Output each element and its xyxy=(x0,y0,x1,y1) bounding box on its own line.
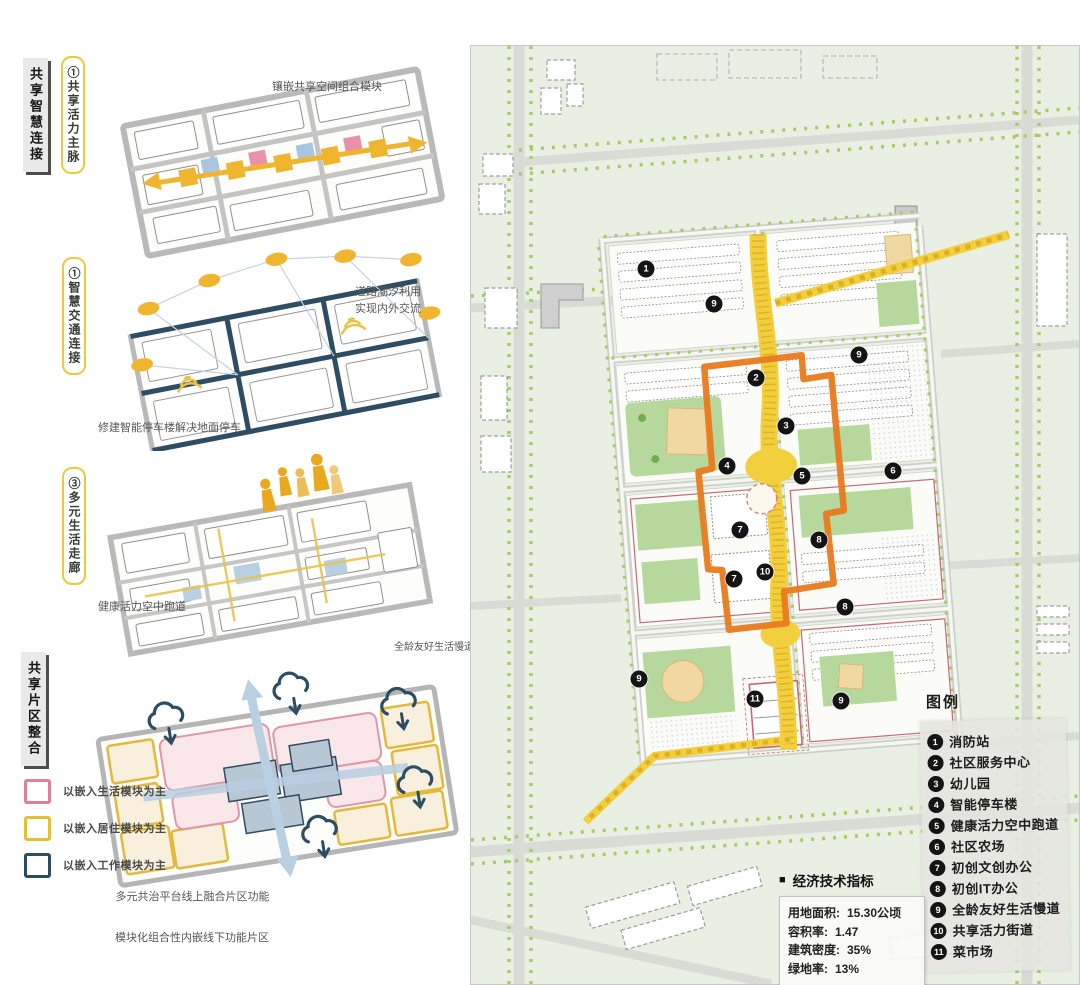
indicator-row: 绿地率: 13% xyxy=(788,960,916,979)
legend-item-label: 初创IT办公 xyxy=(952,878,1019,898)
map-legend: 图例 1 消防站 2 社区服务中心 3 幼儿园 4 智能停车楼 5 健康活力空中… xyxy=(922,691,1068,971)
indicator-label: 容积率: xyxy=(788,923,828,942)
economic-indicators: ■ 经济技术指标 用地面积: 15.30公顷 容积率: 1.47 建筑密度: 3… xyxy=(779,870,925,985)
map-legend-item: 9 全龄友好生活慢道 xyxy=(930,897,1062,920)
callout-smart-traffic: ①智慧交通连接 xyxy=(62,257,86,375)
indicator-row: 建筑密度: 35% xyxy=(788,941,916,960)
legend-item-label: 健康活力空中跑道 xyxy=(950,814,1058,835)
map-legend-item: 1 消防站 xyxy=(927,729,1059,752)
module-legend-label: 以嵌入生活模块为主 xyxy=(63,783,167,799)
map-legend-list: 1 消防站 2 社区服务中心 3 幼儿园 4 智能停车楼 5 健康活力空中跑道 … xyxy=(920,719,1070,973)
module-legend-label: 以嵌入工作模块为主 xyxy=(63,857,167,873)
indicator-value: 15.30公顷 xyxy=(847,904,901,923)
legend-number-badge: 5 xyxy=(929,817,945,833)
module-type-legend: 以嵌入生活模块为主 以嵌入居住模块为主 以嵌入工作模块为主 xyxy=(24,778,167,889)
map-legend-item: 10 共享活力街道 xyxy=(930,918,1062,941)
legend-item-label: 社区农场 xyxy=(951,836,1005,856)
economic-indicators-title: 经济技术指标 xyxy=(793,870,874,890)
diagram-life-corridor-axon xyxy=(82,452,460,657)
map-legend-item: 4 智能停车楼 xyxy=(928,792,1060,815)
annotation-offline-modules: 模块化组合性内嵌线下功能片区 xyxy=(86,930,298,947)
legend-number-badge: 10 xyxy=(930,922,946,938)
annotation-shared-module-band: 镶嵌共享空间组合模块 xyxy=(242,79,412,96)
legend-item-label: 智能停车楼 xyxy=(950,794,1018,814)
module-color-swatch xyxy=(24,816,51,841)
legend-number-badge: 1 xyxy=(927,733,943,749)
map-marker: 2 xyxy=(748,370,765,387)
module-legend-label: 以嵌入居住模块为主 xyxy=(63,820,167,836)
legend-number-badge: 7 xyxy=(929,859,945,875)
map-marker: 9 xyxy=(833,693,850,710)
map-marker: 9 xyxy=(851,347,868,364)
indicator-label: 用地面积: xyxy=(788,904,840,923)
annotation-online-platform: 多元共治平台线上融合片区功能 xyxy=(90,889,295,906)
section-tab-district-integration: 共享片区整合 xyxy=(21,652,46,766)
legend-number-badge: 4 xyxy=(928,796,944,812)
legend-number-badge: 2 xyxy=(927,754,943,770)
legend-number-badge: 3 xyxy=(928,775,944,791)
urban-design-poster: 共享智慧连接 共享片区整合 ①共享活力主脉 ①智慧交通连接 ③多元生活走廊 xyxy=(0,0,1080,985)
map-legend-item: 11 菜市场 xyxy=(931,939,1063,962)
map-marker: 6 xyxy=(885,463,902,480)
master-plan-map: 199234567810789119 图例 1 消防站 2 社区服务中心 3 幼… xyxy=(470,45,1080,985)
module-legend-item: 以嵌入居住模块为主 xyxy=(24,815,167,841)
module-legend-item: 以嵌入生活模块为主 xyxy=(24,778,167,804)
map-legend-item: 2 社区服务中心 xyxy=(927,750,1059,773)
indicator-value: 13% xyxy=(835,960,859,979)
annotation-smart-parking: 修建智能停车楼解决地面停车 xyxy=(98,420,241,437)
legend-item-label: 社区服务中心 xyxy=(949,751,1030,771)
indicator-value: 1.47 xyxy=(835,923,858,942)
indicator-label: 建筑密度: xyxy=(788,941,840,960)
annotation-slow-lane: 全龄友好生活慢道 xyxy=(394,640,474,655)
indicator-row: 容积率: 1.47 xyxy=(788,923,916,942)
map-marker: 1 xyxy=(638,261,655,278)
legend-number-badge: 9 xyxy=(930,901,946,917)
map-marker: 9 xyxy=(706,296,723,313)
section-tab-smart-connect: 共享智慧连接 xyxy=(23,58,48,172)
legend-item-label: 全龄友好生活慢道 xyxy=(952,898,1060,919)
legend-item-label: 菜市场 xyxy=(953,941,994,961)
indicator-label: 绿地率: xyxy=(788,960,828,979)
map-marker: 8 xyxy=(811,532,828,549)
legend-number-badge: 11 xyxy=(931,943,947,959)
callout-vitality-axis: ①共享活力主脉 xyxy=(61,56,85,174)
module-color-swatch xyxy=(24,779,51,804)
map-legend-item: 3 幼儿园 xyxy=(928,771,1060,794)
map-marker: 10 xyxy=(757,564,774,581)
indicator-row: 用地面积: 15.30公顷 xyxy=(788,904,916,923)
legend-item-label: 消防站 xyxy=(949,731,990,751)
map-marker: 4 xyxy=(719,458,736,475)
legend-number-badge: 6 xyxy=(929,838,945,854)
economic-indicators-box: 用地面积: 15.30公顷 容积率: 1.47 建筑密度: 35% 绿地率: 1… xyxy=(779,896,925,985)
map-legend-item: 5 健康活力空中跑道 xyxy=(928,813,1060,836)
indicator-value: 35% xyxy=(847,941,871,960)
map-legend-item: 6 社区农场 xyxy=(929,834,1061,857)
map-marker: 8 xyxy=(837,599,854,616)
map-legend-item: 8 初创IT办公 xyxy=(930,876,1062,899)
map-marker: 7 xyxy=(732,522,749,539)
map-marker: 9 xyxy=(631,671,648,688)
map-marker: 3 xyxy=(778,418,795,435)
legend-number-badge: 8 xyxy=(930,880,946,896)
economic-indicators-header: ■ 经济技术指标 xyxy=(779,870,925,890)
annotation-sky-track: 健康活力空中跑道 xyxy=(98,599,186,616)
map-marker: 11 xyxy=(747,691,764,708)
map-legend-title: 图例 xyxy=(926,691,1068,712)
module-color-swatch xyxy=(24,853,51,878)
legend-item-label: 初创文创办公 xyxy=(951,856,1032,876)
map-marker: 7 xyxy=(726,571,743,588)
legend-item-label: 幼儿园 xyxy=(950,773,991,793)
module-legend-item: 以嵌入工作模块为主 xyxy=(24,852,167,878)
annotation-tidal-road: 道路潮汐利用 实现内外交流 xyxy=(338,284,438,317)
map-marker: 5 xyxy=(794,468,811,485)
square-bullet-icon: ■ xyxy=(779,874,786,886)
map-legend-item: 7 初创文创办公 xyxy=(929,855,1061,878)
legend-item-label: 共享活力街道 xyxy=(952,919,1033,939)
